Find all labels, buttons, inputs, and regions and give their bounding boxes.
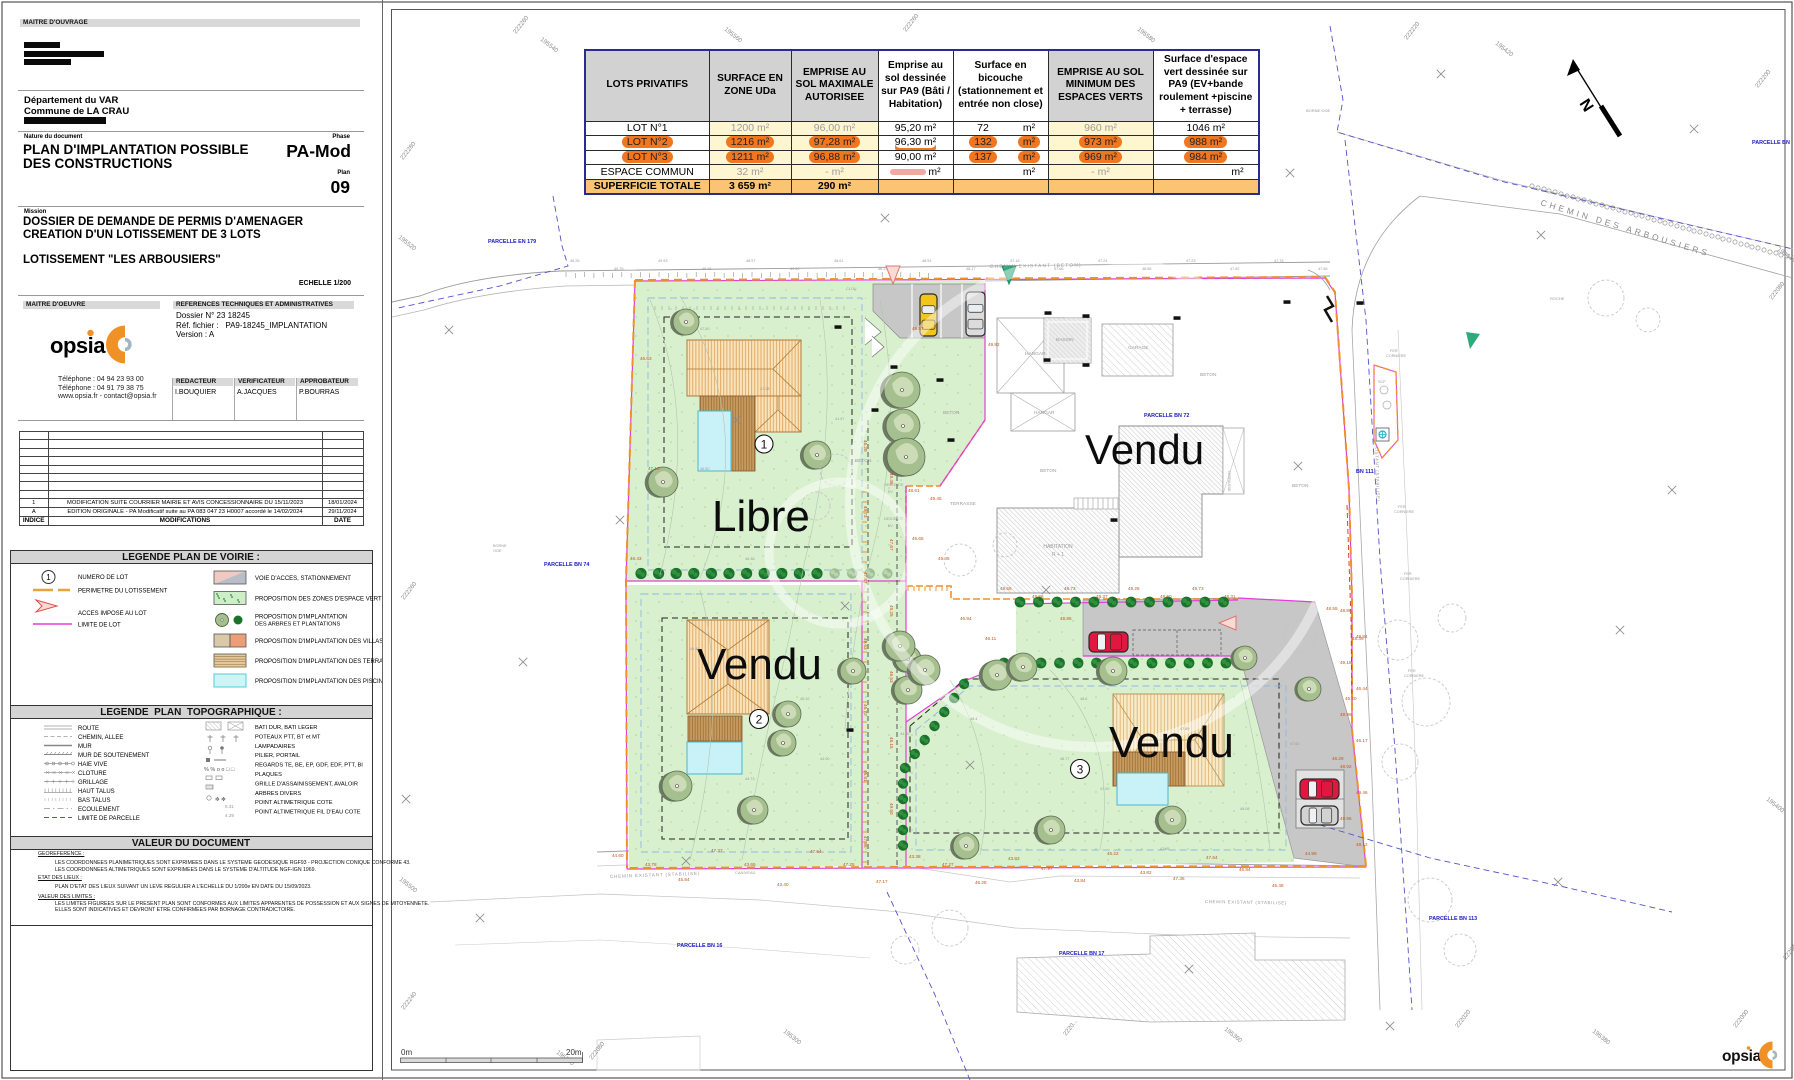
svg-text:47.67: 47.67 xyxy=(889,539,894,551)
svg-text:48.91: 48.91 xyxy=(922,259,932,263)
svg-text:OGE: OGE xyxy=(493,549,502,553)
svg-text:EV: EV xyxy=(888,490,893,494)
svg-text:47.37: 47.37 xyxy=(711,848,723,853)
svg-text:3: 3 xyxy=(1077,763,1084,777)
svg-text:48.86: 48.86 xyxy=(1340,608,1352,613)
svg-text:43.84: 43.84 xyxy=(1074,878,1086,883)
svg-text:FER: FER xyxy=(1404,572,1412,576)
svg-text:49.26: 49.26 xyxy=(1128,586,1140,591)
svg-text:48.97: 48.97 xyxy=(746,259,756,263)
svg-text:47.17: 47.17 xyxy=(876,879,888,884)
svg-text:46.43: 46.43 xyxy=(630,556,642,561)
svg-text:Vendu: Vendu xyxy=(1085,426,1204,473)
svg-text:44.73: 44.73 xyxy=(745,777,755,781)
svg-text:CORNIERE: CORNIERE xyxy=(1386,354,1407,358)
svg-text:R + 1: R + 1 xyxy=(1052,552,1064,558)
svg-text:0m: 0m xyxy=(401,1048,412,1057)
svg-text:TERRASSE: TERRASSE xyxy=(950,501,976,507)
svg-text:BORNE: BORNE xyxy=(493,544,507,548)
svg-text:BETON: BETON xyxy=(1200,372,1217,378)
svg-text:47.89: 47.89 xyxy=(1180,727,1190,731)
svg-text:48.88: 48.88 xyxy=(1032,594,1044,599)
svg-text:CLOU: CLOU xyxy=(846,287,857,291)
svg-text:SCP: SCP xyxy=(1378,380,1386,384)
svg-text:FER: FER xyxy=(1398,505,1406,509)
svg-text:49.73: 49.73 xyxy=(863,506,868,518)
svg-text:46.20: 46.20 xyxy=(1345,696,1357,701)
svg-text:BORNE OGE: BORNE OGE xyxy=(1306,108,1331,113)
svg-text:EV: EV xyxy=(888,524,893,528)
svg-text:47.85: 47.85 xyxy=(1160,847,1170,851)
svg-text:48.6: 48.6 xyxy=(1080,697,1087,701)
svg-text:48.15: 48.15 xyxy=(889,737,894,749)
svg-text:TERRASSE: TERRASSE xyxy=(1227,470,1232,492)
svg-text:44.50: 44.50 xyxy=(900,732,910,736)
svg-text:49.50: 49.50 xyxy=(889,803,894,815)
svg-text:46.94: 46.94 xyxy=(960,616,972,621)
svg-text:46.29: 46.29 xyxy=(1332,756,1344,761)
svg-text:GARAGE: GARAGE xyxy=(1128,345,1149,351)
svg-text:45.32: 45.32 xyxy=(800,697,810,701)
svg-text:47.56: 47.56 xyxy=(1318,267,1328,271)
svg-text:FER: FER xyxy=(1408,669,1416,673)
svg-text:BETON: BETON xyxy=(1040,468,1057,474)
svg-text:43.40: 43.40 xyxy=(777,882,789,887)
svg-text:45.25: 45.25 xyxy=(889,605,894,617)
svg-text:43.82: 43.82 xyxy=(1140,870,1152,875)
svg-text:48.60: 48.60 xyxy=(1160,594,1172,599)
svg-text:CORNIERE: CORNIERE xyxy=(1400,577,1421,581)
svg-text:48.08: 48.08 xyxy=(1240,807,1250,811)
svg-text:47.64: 47.64 xyxy=(810,849,822,854)
svg-text:49.95: 49.95 xyxy=(1340,816,1352,821)
svg-text:47.66: 47.66 xyxy=(1054,267,1064,271)
svg-text:47.78: 47.78 xyxy=(1274,259,1284,263)
svg-text:20m: 20m xyxy=(566,1048,582,1057)
svg-text:45.45: 45.45 xyxy=(690,647,700,651)
svg-text:HANGAR: HANGAR xyxy=(1034,410,1055,416)
svg-text:BASSIN: BASSIN xyxy=(1056,337,1074,343)
svg-text:43.78: 43.78 xyxy=(645,862,657,867)
svg-text:PARCELLE BN 74: PARCELLE BN 74 xyxy=(544,562,589,568)
svg-text:48.61: 48.61 xyxy=(908,488,920,493)
svg-text:49.16: 49.16 xyxy=(702,267,712,271)
svg-text:opsia: opsia xyxy=(1722,1048,1762,1065)
svg-text:46.11: 46.11 xyxy=(985,636,997,641)
svg-text:48.86: 48.86 xyxy=(1142,267,1152,271)
svg-text:45.81: 45.81 xyxy=(863,770,868,782)
svg-text:48.85: 48.85 xyxy=(1060,616,1072,621)
svg-text:46.20: 46.20 xyxy=(863,440,868,452)
svg-text:2: 2 xyxy=(756,713,763,727)
svg-text:43.38: 43.38 xyxy=(909,854,921,859)
svg-text:49.57: 49.57 xyxy=(912,326,924,331)
svg-text:Vendu: Vendu xyxy=(1109,718,1234,767)
svg-text:44.90: 44.90 xyxy=(820,757,830,761)
svg-text:46.17: 46.17 xyxy=(1356,738,1368,743)
svg-text:47.60: 47.60 xyxy=(1290,742,1300,746)
svg-text:49.63: 49.63 xyxy=(863,638,868,650)
svg-text:47.87: 47.87 xyxy=(863,572,868,584)
svg-text:48.55: 48.55 xyxy=(1326,606,1338,611)
svg-text:48.31: 48.31 xyxy=(1224,594,1236,599)
svg-text:47.82: 47.82 xyxy=(1230,267,1240,271)
svg-text:46.44: 46.44 xyxy=(1356,686,1368,691)
svg-text:CORNIERE: CORNIERE xyxy=(1404,674,1425,678)
svg-text:47.23: 47.23 xyxy=(1186,259,1196,263)
svg-text:46.63: 46.63 xyxy=(640,356,652,361)
svg-text:48.77: 48.77 xyxy=(1060,757,1070,761)
svg-text:46.50: 46.50 xyxy=(700,467,710,471)
svg-text:47.50: 47.50 xyxy=(1100,787,1110,791)
svg-text:PARCELLE EN 179: PARCELLE EN 179 xyxy=(488,239,536,245)
svg-text:ROCHE: ROCHE xyxy=(1550,296,1565,301)
svg-text:49.73: 49.73 xyxy=(1192,586,1204,591)
svg-text:47.27: 47.27 xyxy=(942,862,954,867)
svg-text:CANIVEAU: CANIVEAU xyxy=(735,870,756,875)
svg-text:BETON: BETON xyxy=(1292,483,1309,489)
svg-text:48.73: 48.73 xyxy=(1064,586,1076,591)
svg-text:49.55: 49.55 xyxy=(1000,586,1012,591)
svg-text:45.48: 45.48 xyxy=(1272,883,1284,888)
svg-text:PARCELLE BN 16: PARCELLE BN 16 xyxy=(677,943,722,949)
svg-text:46.28: 46.28 xyxy=(975,880,987,885)
svg-text:47.28: 47.28 xyxy=(760,387,770,391)
svg-text:PARCELLE BN 17: PARCELLE BN 17 xyxy=(1059,951,1104,957)
svg-text:44.99: 44.99 xyxy=(1305,851,1317,856)
svg-text:48.39: 48.39 xyxy=(1352,636,1364,641)
svg-text:46.38: 46.38 xyxy=(745,557,755,561)
svg-text:Vendu: Vendu xyxy=(697,640,822,689)
svg-text:BN 111: BN 111 xyxy=(1356,469,1374,475)
svg-text:1: 1 xyxy=(761,438,768,452)
svg-text:44.60: 44.60 xyxy=(612,853,624,858)
svg-text:43.83: 43.83 xyxy=(1008,856,1020,861)
svg-text:46.65: 46.65 xyxy=(912,536,924,541)
svg-text:Libre: Libre xyxy=(712,492,810,541)
svg-text:47.98: 47.98 xyxy=(863,836,868,848)
svg-text:49.48: 49.48 xyxy=(889,473,894,485)
svg-text:47.10: 47.10 xyxy=(648,466,660,471)
svg-text:HABITATION: HABITATION xyxy=(1043,544,1073,550)
svg-text:49.46: 49.46 xyxy=(1356,790,1368,795)
svg-text:45.22: 45.22 xyxy=(1107,851,1119,856)
svg-text:BETON: BETON xyxy=(943,410,960,416)
svg-text:47.24: 47.24 xyxy=(1098,259,1108,263)
svg-text:CORNIERE: CORNIERE xyxy=(1394,510,1415,514)
svg-text:47.36: 47.36 xyxy=(1173,876,1185,881)
svg-text:49.99: 49.99 xyxy=(1340,712,1352,717)
svg-text:49.45: 49.45 xyxy=(938,556,950,561)
svg-text:48.17: 48.17 xyxy=(966,267,976,271)
svg-text:48.26: 48.26 xyxy=(570,259,580,263)
svg-text:47.50: 47.50 xyxy=(700,327,710,331)
svg-text:49.45: 49.45 xyxy=(930,496,942,501)
svg-text:49.75: 49.75 xyxy=(614,267,624,271)
svg-text:46.84: 46.84 xyxy=(1239,867,1251,872)
svg-text:47.18: 47.18 xyxy=(1010,259,1020,263)
svg-text:48.61: 48.61 xyxy=(834,259,844,263)
svg-text:43.65: 43.65 xyxy=(744,862,756,867)
svg-text:48.4: 48.4 xyxy=(970,717,977,721)
svg-text:47.64: 47.64 xyxy=(1206,855,1218,860)
svg-text:47.25: 47.25 xyxy=(843,862,855,867)
svg-text:48.23: 48.23 xyxy=(878,267,888,271)
svg-text:48.37: 48.37 xyxy=(1096,594,1108,599)
svg-text:PARCELLE BN 113: PARCELLE BN 113 xyxy=(1429,916,1477,922)
svg-text:49.82: 49.82 xyxy=(988,342,1000,347)
svg-text:45.84: 45.84 xyxy=(678,877,690,882)
svg-text:49.93: 49.93 xyxy=(658,259,668,263)
svg-text:48.92: 48.92 xyxy=(1340,764,1352,769)
svg-text:46.72: 46.72 xyxy=(863,704,868,716)
svg-text:49.18: 49.18 xyxy=(1340,660,1352,665)
svg-text:48.12: 48.12 xyxy=(1356,842,1368,847)
svg-text:FER: FER xyxy=(1390,349,1398,353)
svg-text:PARCELLE BN 72: PARCELLE BN 72 xyxy=(1144,413,1189,419)
svg-text:41.57: 41.57 xyxy=(835,417,845,421)
svg-text:47.97: 47.97 xyxy=(1041,866,1053,871)
svg-text:HANGAR: HANGAR xyxy=(1025,351,1046,357)
svg-text:46.53: 46.53 xyxy=(889,671,894,683)
svg-text:BETON: BETON xyxy=(855,458,872,464)
svg-text:PARCELLE BN: PARCELLE BN xyxy=(1752,140,1790,146)
svg-text:49.60: 49.60 xyxy=(790,267,800,271)
